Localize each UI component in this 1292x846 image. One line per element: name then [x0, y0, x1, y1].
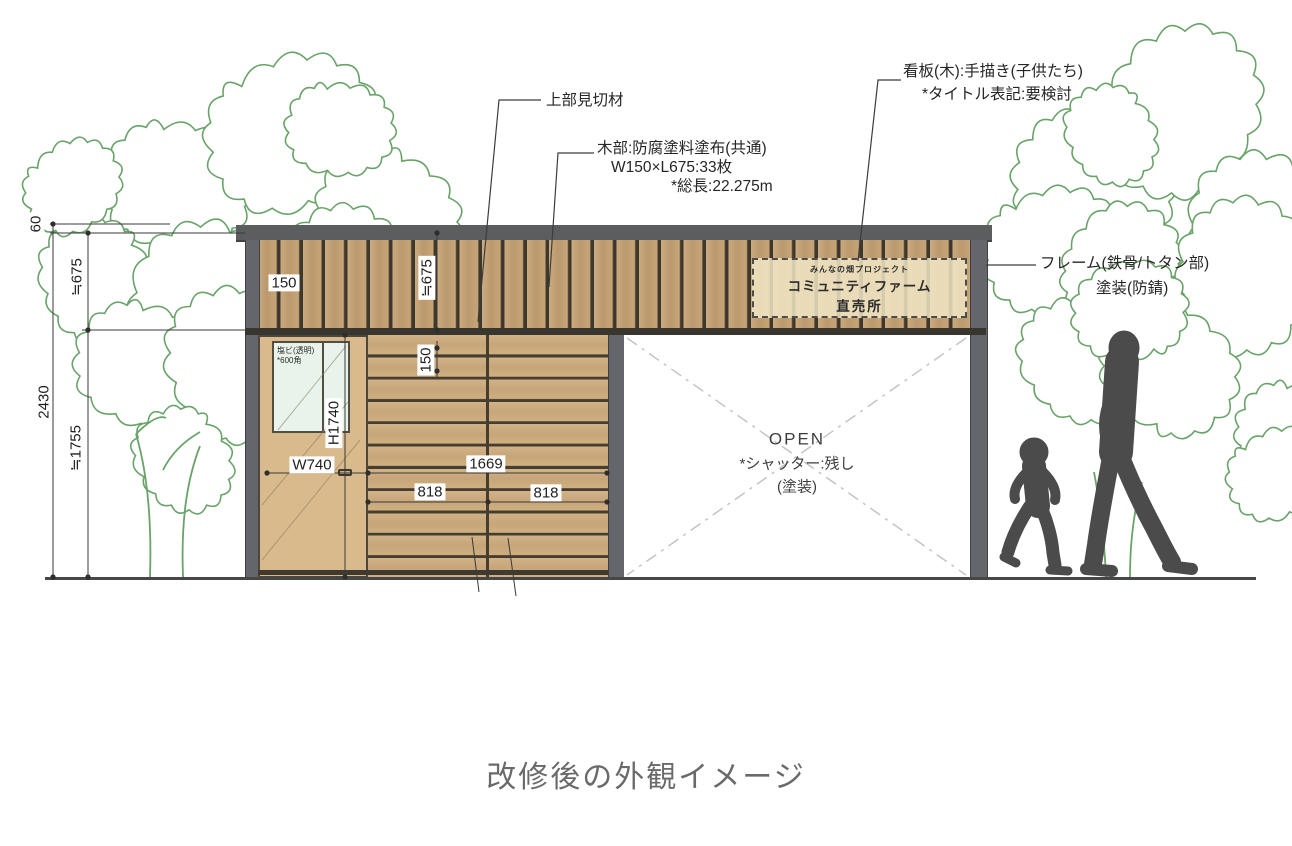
- note-wood-1: 木部:防腐塗料塗布(共通): [597, 140, 767, 159]
- dim-plank-width: 150: [268, 274, 299, 291]
- dim-wall-plank-height: 150: [417, 344, 434, 375]
- note-frame-1: フレーム(鉄骨/トタン部): [1040, 255, 1209, 274]
- dim-lower-wall-height: ≒1755: [67, 422, 84, 474]
- child-silhouette: [1004, 438, 1068, 571]
- opening-label-shutter: *シャッター:残し: [739, 453, 854, 474]
- note-top-trim: 上部見切材: [546, 92, 624, 111]
- note-wood-2: W150×L675:33枚: [611, 159, 732, 178]
- note-signboard-2: *タイトル表記:要検討: [922, 86, 1072, 105]
- dim-upper-band-height-mid: ≒675: [418, 256, 435, 300]
- opening-label-open: OPEN: [739, 430, 854, 450]
- elevation-drawing: 塩ビ(透明) *600角 みんなの畑プロジェクト コミュニティファーム 直売所: [0, 0, 1292, 846]
- linework-layer: [0, 0, 1292, 846]
- note-wood-3: *総長:22.275m: [671, 178, 773, 197]
- note-signboard-1: 看板(木):手描き(子供たち): [903, 63, 1083, 82]
- dim-wall-left-half: 818: [414, 483, 445, 500]
- leader-lines: [478, 80, 1036, 322]
- opening-label: OPEN *シャッター:残し (塗装): [739, 430, 854, 497]
- dim-total-height: 2430: [35, 382, 52, 421]
- dim-wall-width: 1669: [466, 455, 505, 472]
- dim-door-width: W740: [289, 456, 334, 473]
- dim-upper-band-height: ≒675: [68, 255, 85, 299]
- drawing-caption: 改修後の外観イメージ: [0, 752, 1292, 796]
- opening-label-paint: (塗装): [739, 476, 854, 497]
- dim-wall-right-half: 818: [530, 484, 561, 501]
- dim-door-height: H1740: [325, 398, 342, 448]
- dim-roof-edge: 60: [27, 213, 44, 236]
- note-frame-2: 塗装(防錆): [1096, 280, 1168, 299]
- adult-silhouette: [1086, 331, 1192, 571]
